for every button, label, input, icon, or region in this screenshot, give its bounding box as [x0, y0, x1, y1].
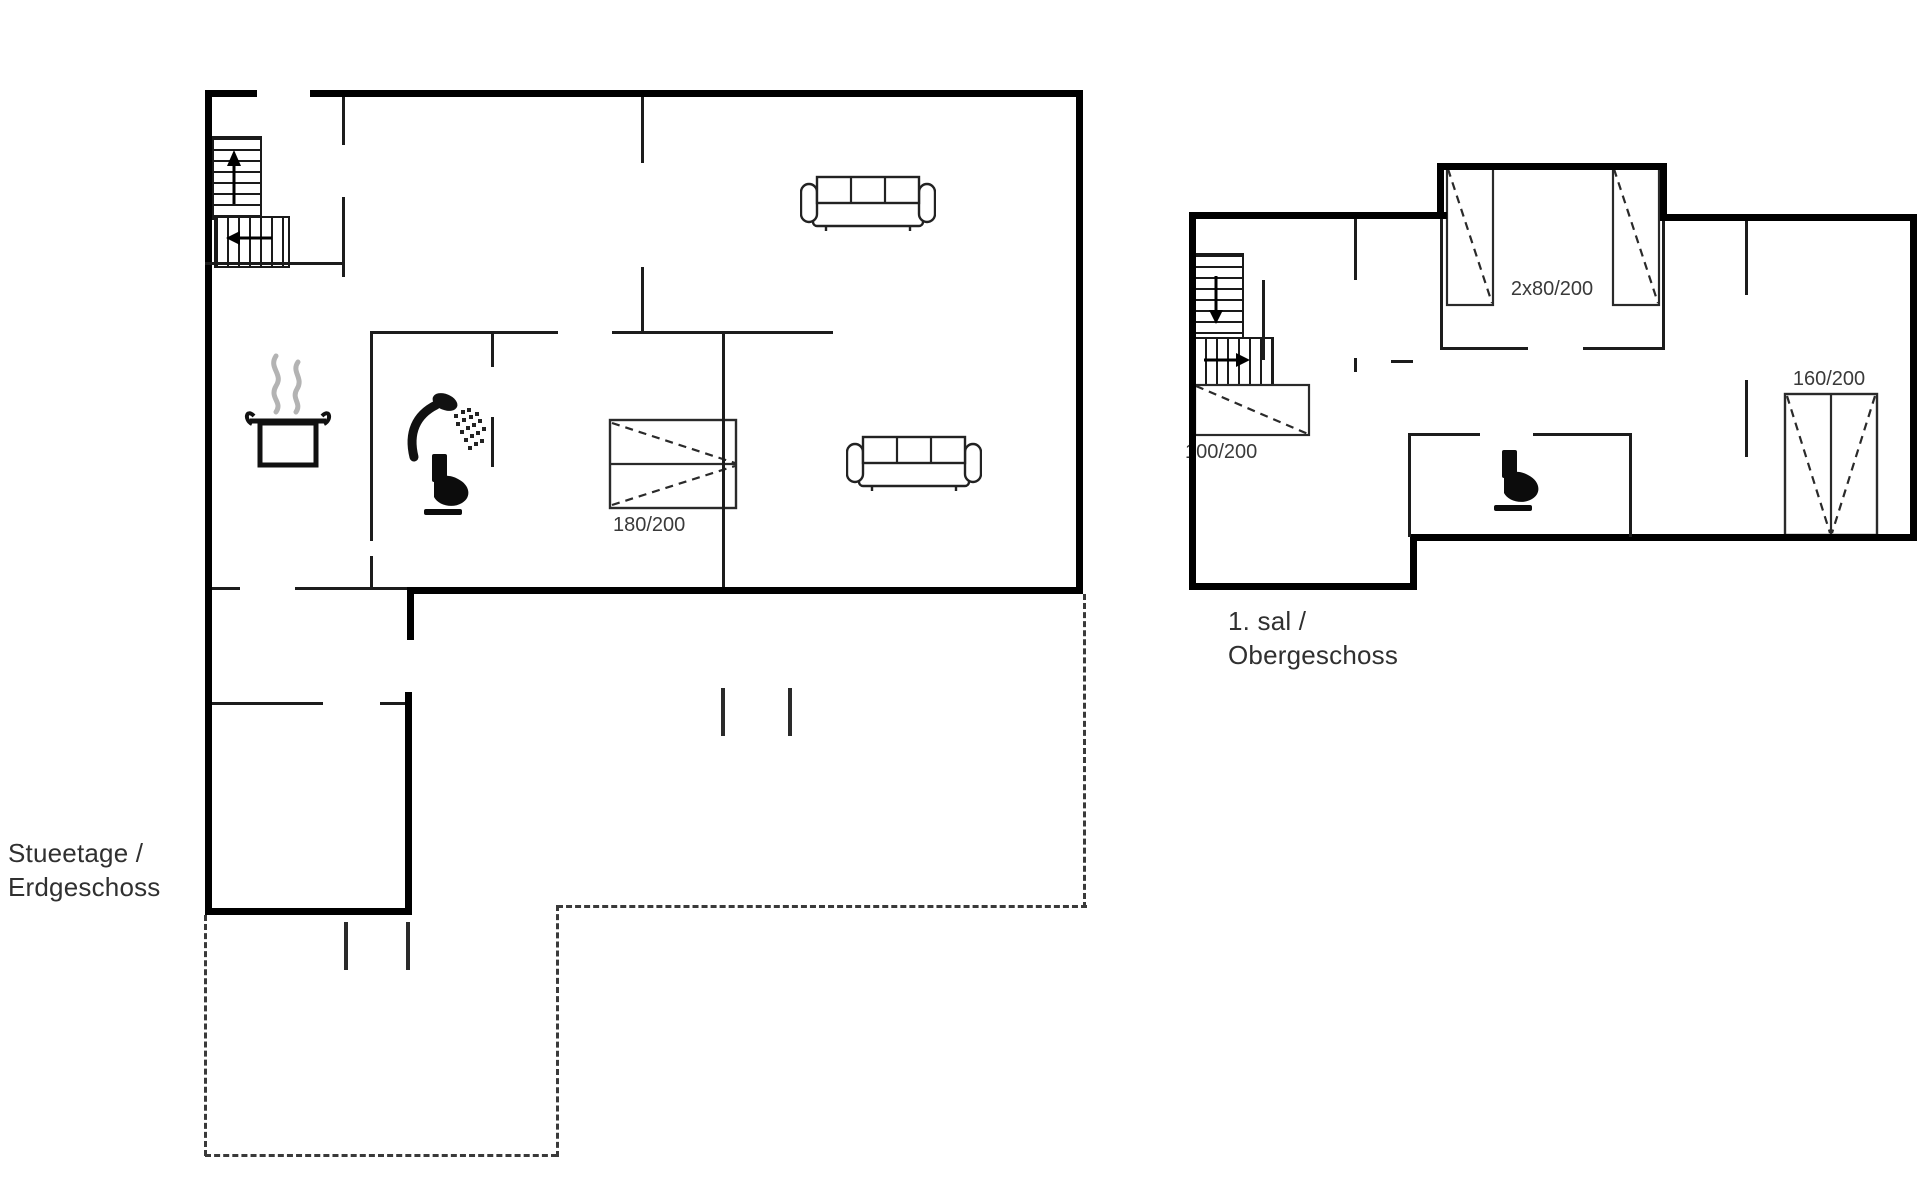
interior-wall-segment	[295, 587, 407, 590]
interior-wall-segment	[1629, 433, 1632, 537]
exterior-wall-segment	[1189, 212, 1447, 219]
interior-wall-segment	[370, 331, 558, 334]
interior-wall-segment	[1662, 221, 1665, 350]
interior-wall-segment	[370, 556, 373, 590]
bed-size-label: 2x80/200	[1466, 278, 1638, 300]
exterior-wall-segment	[310, 90, 1083, 97]
terrace-dashed-outline	[556, 905, 559, 1157]
exterior-wall-segment	[1189, 212, 1196, 590]
sofa-icon	[846, 434, 982, 492]
exterior-wall-segment	[407, 587, 1083, 594]
double-bed-160-icon	[1783, 392, 1879, 537]
exterior-wall-segment	[1076, 90, 1083, 594]
interior-wall-segment	[1408, 433, 1480, 436]
interior-wall-segment	[370, 334, 373, 541]
exterior-wall-segment	[1410, 534, 1917, 541]
terrace-dashed-outline	[557, 905, 1087, 908]
upper-floor-label: 1. sal / Obergeschoss	[1228, 604, 1398, 672]
exterior-wall-segment	[205, 90, 257, 97]
interior-wall-segment	[1262, 280, 1265, 360]
terrace-dashed-outline	[1083, 594, 1086, 908]
interior-wall-segment	[1440, 219, 1443, 350]
terrace-dashed-outline	[204, 915, 207, 1156]
interior-wall-segment	[1354, 219, 1357, 280]
interior-wall-segment	[205, 262, 345, 265]
door-jamb-mark	[406, 922, 410, 970]
exterior-wall-segment	[1910, 214, 1917, 541]
exterior-wall-segment	[1437, 163, 1444, 219]
exterior-wall-segment	[1660, 163, 1667, 221]
door-jamb-mark	[788, 688, 792, 736]
exterior-wall-segment	[1410, 534, 1417, 590]
upper-floor-label-line1: 1. sal /	[1228, 604, 1398, 638]
terrace-dashed-outline	[205, 1154, 557, 1157]
arrow-down-icon	[1206, 272, 1226, 328]
ground-floor-label-line1: Stueetage /	[8, 836, 161, 870]
exterior-wall-segment	[205, 90, 212, 915]
interior-wall-segment	[1440, 347, 1528, 350]
exterior-wall-segment	[1189, 583, 1417, 590]
interior-wall-segment	[342, 97, 345, 145]
interior-wall-segment	[1745, 380, 1748, 457]
interior-wall-segment	[212, 587, 240, 590]
interior-wall-segment	[722, 334, 725, 587]
interior-wall-segment	[641, 97, 644, 163]
sofa-icon	[800, 174, 936, 232]
interior-wall-segment	[1583, 347, 1664, 350]
exterior-wall-segment	[205, 908, 412, 915]
interior-wall-segment	[1745, 221, 1748, 295]
door-jamb-mark	[344, 922, 348, 970]
interior-wall-segment	[1391, 360, 1413, 363]
interior-wall-segment	[491, 334, 494, 367]
interior-wall-segment	[1533, 433, 1632, 436]
interior-wall-segment	[342, 197, 345, 277]
door-jamb-mark	[721, 688, 725, 736]
interior-wall-segment	[1408, 433, 1411, 537]
single-bed-100-icon	[1193, 383, 1311, 437]
exterior-wall-segment	[1660, 214, 1917, 221]
upper-floor-plan: 100/200 2x80/200 160/200 1. sal /	[0, 0, 800, 800]
toilet-icon	[1482, 448, 1558, 518]
ground-floor-label: Stueetage / Erdgeschoss	[8, 836, 161, 904]
exterior-wall-segment	[405, 692, 412, 908]
interior-wall-segment	[491, 417, 494, 467]
arrow-right-icon	[1198, 350, 1254, 370]
floorplan-canvas: 180/200 Stueetage / Erdgeschoss	[0, 0, 1920, 1200]
upper-floor-label-line2: Obergeschoss	[1228, 638, 1398, 672]
interior-wall-segment	[1354, 358, 1357, 372]
interior-wall-segment	[641, 267, 644, 333]
interior-wall-segment	[380, 702, 405, 705]
ground-floor-label-line2: Erdgeschoss	[8, 870, 161, 904]
exterior-wall-segment	[407, 594, 414, 640]
bed-size-label: 160/200	[1778, 368, 1880, 390]
interior-wall-segment	[212, 702, 323, 705]
exterior-wall-segment	[1437, 163, 1667, 170]
